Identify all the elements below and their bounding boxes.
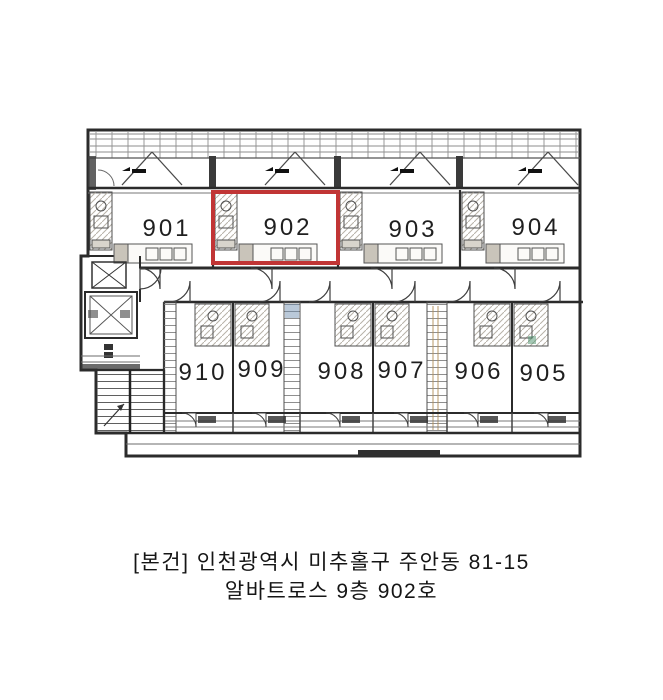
room-label-902: 902 (263, 214, 312, 241)
room-label-905: 905 (519, 360, 568, 387)
caption-line2: 알바트로스 9층 902호 (0, 577, 663, 606)
room-label-903: 903 (388, 216, 437, 243)
unit-bathrooms-bottom (195, 304, 548, 346)
staircase (96, 370, 164, 433)
caption: [본건] 인천광역시 미추홀구 주안동 81-15 알바트로스 9층 902호 (0, 548, 663, 606)
room-label-909: 909 (237, 356, 286, 383)
caption-line1: [본건] 인천광역시 미추홀구 주안동 81-15 (0, 548, 663, 577)
room-label-908: 908 (317, 358, 366, 385)
dimension-annotation (358, 450, 440, 456)
room-label-901: 901 (142, 215, 191, 242)
room-label-910: 910 (178, 359, 227, 386)
room-label-904: 904 (511, 214, 560, 241)
balcony-window-ticks (88, 132, 580, 158)
room-label-906: 906 (454, 358, 503, 385)
room-label-907: 907 (377, 357, 426, 384)
